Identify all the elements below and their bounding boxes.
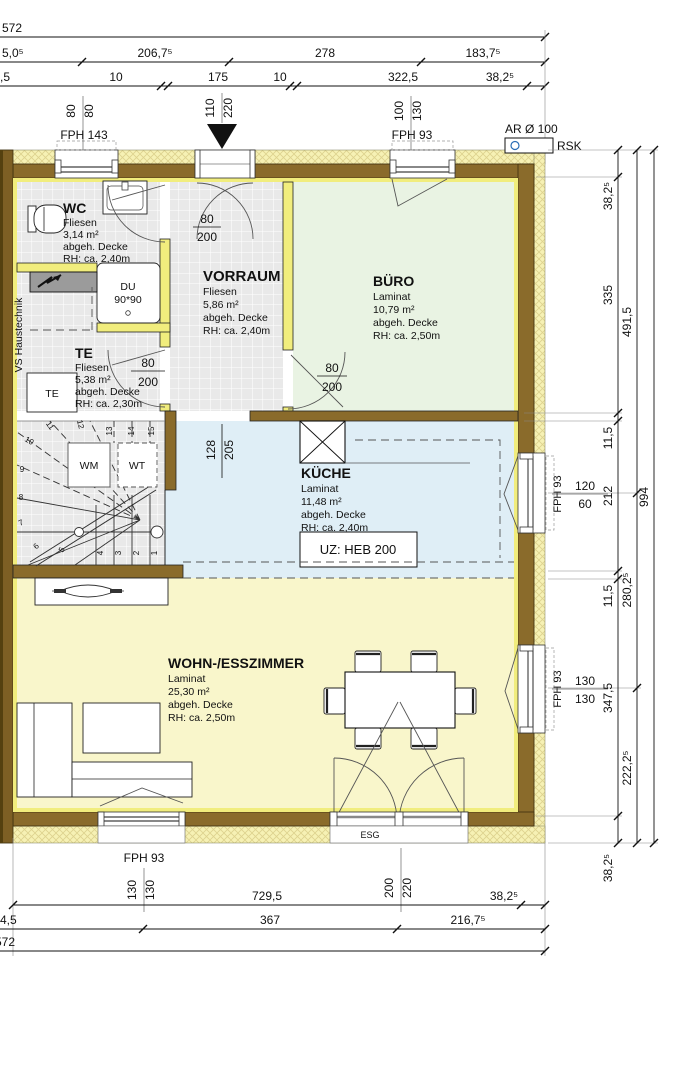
dim-label: 200 [382,878,396,898]
window-fph143 [55,141,118,178]
dim-label: 220 [221,98,235,118]
vent-code-label: RSK [557,139,582,153]
dim-label: 38,2⁵ [490,889,518,903]
room-ceiling: abgeh. Decke [63,241,128,253]
dim-label: 10 [109,70,123,84]
dim-label: 347,5 [601,683,615,713]
te-box-label: TE [45,388,58,400]
wall-kueche-north [250,411,518,421]
room-name: VORRAUM [203,268,281,285]
newel-post-icon [151,526,163,538]
shower-size-label: 90*90 [114,294,142,306]
dim-label: 80 [82,104,96,118]
dim-label: 38,2⁵ [486,70,514,84]
label-fph93-top: 100 130 FPH 93 [392,96,433,150]
tv-icon-end [110,589,122,593]
lining-left [13,178,17,812]
dim-label: 200 [138,375,158,389]
label-entry: 110 220 [203,93,235,123]
entry-opening [195,124,255,178]
wall-stairs-east [165,411,176,490]
dim-label: 205 [222,440,236,460]
room-ceiling: abgeh. Decke [75,386,140,398]
room-ceiling: abgeh. Decke [203,312,268,324]
dim-label: 335 [601,285,615,305]
dim-label: 100 [392,101,406,121]
dim-label: 130 [410,101,424,121]
window-label: FPH 93 [124,851,165,865]
dim-label: 216,7⁵ [450,913,485,927]
shower-label: DU [120,281,135,293]
dim-label: 38,2⁵ [601,182,615,210]
dim-label: 200 [197,230,217,244]
window-fph93-top [390,141,455,178]
shaft [300,421,345,463]
room-name: TE [75,345,93,361]
room-floor: Fliesen [203,286,237,298]
window-label: FPH 93 [552,670,564,707]
room-area: 5,86 m² [203,299,239,311]
vent-label: AR Ø 100 [505,122,558,136]
dim-label: 183,7⁵ [465,46,500,60]
step-number: 9 [20,465,25,474]
room-floor: Laminat [168,673,205,685]
wall-vorraum-west2 [160,404,170,411]
wall-shower-south [97,323,170,332]
dim-label: 11,5 [601,426,615,449]
room-area: 5,38 m² [75,374,111,386]
lining-top [13,178,514,182]
label-fph143: 80 80 FPH 143 [60,96,108,150]
washer-label: WM [80,460,99,472]
beam-label: UZ: HEB 200 [320,542,397,557]
label-window-living: FPH 93 130 130 [552,670,608,707]
room-ceiling: abgeh. Decke [168,699,233,711]
dim-label: 222,2⁵ [620,750,634,785]
dim-label: 4,5 [0,913,17,927]
dim-label: 200 [322,380,342,394]
dim-label: 80 [141,356,155,370]
dim-label: 280,2⁵ [620,572,634,607]
entry-arrow-icon [207,124,237,149]
label-terrace-door: 200 220 [382,848,414,912]
step-number: 13 [105,426,114,435]
wall-left-edge [0,150,3,843]
room-name: BÜRO [373,273,414,289]
room-floor: Laminat [301,483,338,495]
terrace-door: ESG [330,812,468,843]
dim-label: 367 [260,913,280,927]
dim-label: 110 [203,98,217,117]
dim-label: ,5 [0,70,10,84]
lining-bottom [13,808,514,812]
dim-label: 491,5 [620,307,634,337]
room-area: 11,48 m² [301,496,342,508]
dining-table [345,672,455,728]
dim-label: 60 [578,497,592,511]
newel-post-icon [75,528,84,537]
step-number: 4 [96,550,105,555]
te-storage-box: TE [27,373,77,412]
room-area: 10,79 m² [373,304,415,316]
dimension-rows-bottom: 729,5 38,2⁵ 4,5 367 216,7⁵ 572 [0,838,549,956]
label-window-kitchen: FPH 93 120 60 [552,475,608,512]
electrical-panel [30,272,97,292]
label-window-bottom: FPH 93 130 130 [124,851,165,912]
dim-label: 130 [575,692,595,706]
wall-stairs-south [13,565,183,578]
room-name: KÜCHE [301,465,351,481]
dim-label: 11,5 [601,584,615,607]
room-height: RH: ca. 2,40m [203,325,270,337]
dim-label: 80 [64,104,78,118]
step-number: 3 [114,550,123,555]
lining-right [514,178,518,812]
dim-label: 120 [575,479,595,493]
dim-label: 572 [0,935,15,949]
dim-label: 80 [325,361,339,375]
dim-label: 130 [575,674,595,688]
dim-label: 572 [2,21,22,35]
window-fph93-living [518,645,554,733]
room-floor: Fliesen [75,362,109,374]
toilet [28,205,66,233]
vent-circle-icon [511,142,519,150]
dim-label: 10 [273,70,287,84]
floor-plan-drawing: 572 5,0⁵ 206,7⁵ 278 183,7⁵ ,5 10 175 10 … [0,0,695,1080]
dim-label: 220 [400,878,414,898]
dim-label: 130 [143,880,157,900]
room-height: RH: ca. 2,50m [373,330,440,342]
room-ceiling: abgeh. Decke [373,317,438,329]
room-name: WC [63,200,86,216]
window-label: FPH 93 [392,128,433,142]
room-area: 25,30 m² [168,686,210,698]
shower: DU 90*90 [97,263,160,323]
dim-label: 130 [125,880,139,900]
dim-label: 5,0⁵ [2,46,24,60]
room-name: WOHN-/ESSZIMMER [168,655,304,671]
room-ceiling: abgeh. Decke [301,509,366,521]
dim-label: 38,2⁵ [601,854,615,882]
floor-plan-page: 572 5,0⁵ 206,7⁵ 278 183,7⁵ ,5 10 175 10 … [0,0,695,1080]
dim-label: 729,5 [252,889,282,903]
sideboard-tv [35,578,168,605]
dim-label: 80 [200,212,214,226]
room-area: 3,14 m² [63,229,99,241]
step-number: 8 [19,493,24,502]
room-floor: Laminat [373,291,410,303]
window-label: FPH 93 [552,475,564,512]
window-label: FPH 143 [60,128,108,142]
step-number: 15 [147,426,156,435]
wall-buero-west [283,182,293,350]
haustechnik-label: VS Haustechnik [13,297,25,372]
step-number: 1 [150,550,159,555]
dim-label: 175 [208,70,228,84]
dim-label: 206,7⁵ [137,46,172,60]
dim-label: 278 [315,46,335,60]
vent-symbol [505,138,553,153]
step-number: 14 [127,426,136,435]
dim-label: 994 [637,487,651,507]
step-number: 2 [132,550,141,555]
room-floor: Fliesen [63,217,97,229]
room-height: RH: ca. 2,30m [75,398,142,410]
room-height: RH: ca. 2,50m [168,712,235,724]
dim-label: 212 [601,486,615,506]
dim-label: 128 [204,440,218,460]
tv-icon-end [54,589,66,593]
coffee-table [83,703,160,753]
dim-label: 322,5 [388,70,418,84]
window-fph93-bottom [98,812,185,843]
dryer-label: WT [129,460,146,472]
terrace-door-label: ESG [360,830,379,840]
